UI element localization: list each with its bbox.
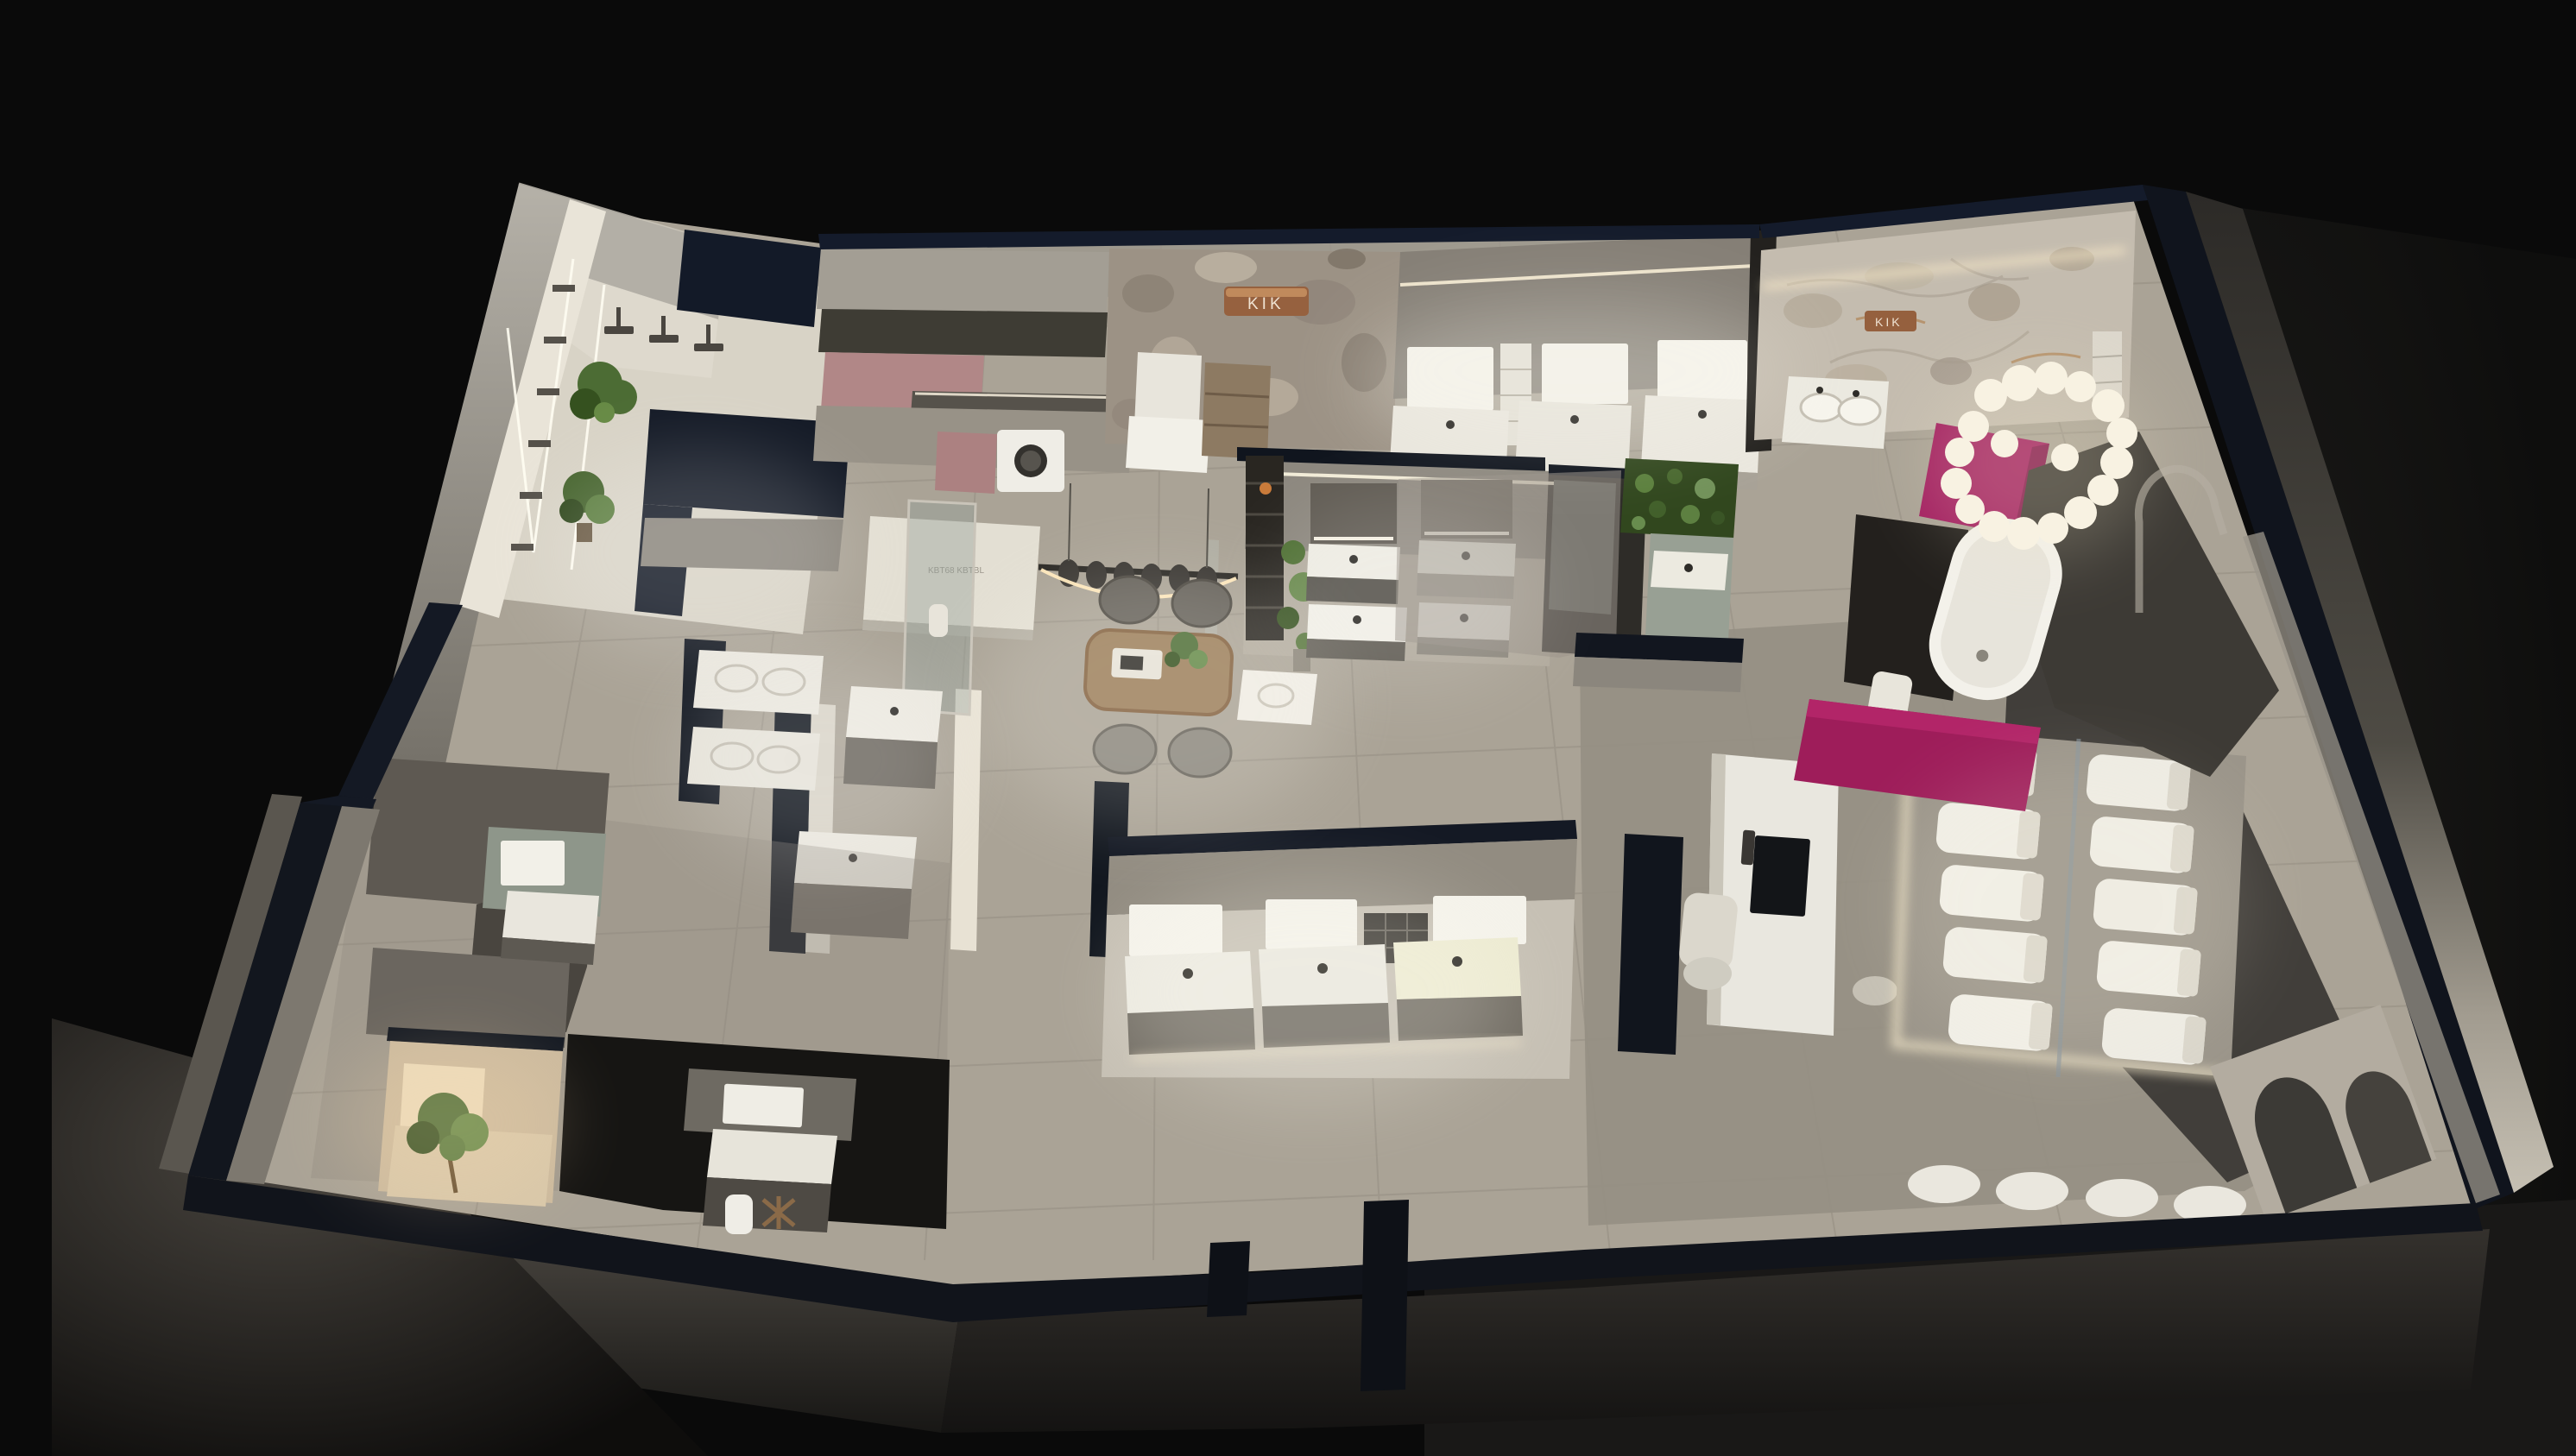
svg-text:KIK: KIK: [1247, 295, 1285, 313]
svg-text:KIK: KIK: [1875, 315, 1903, 329]
